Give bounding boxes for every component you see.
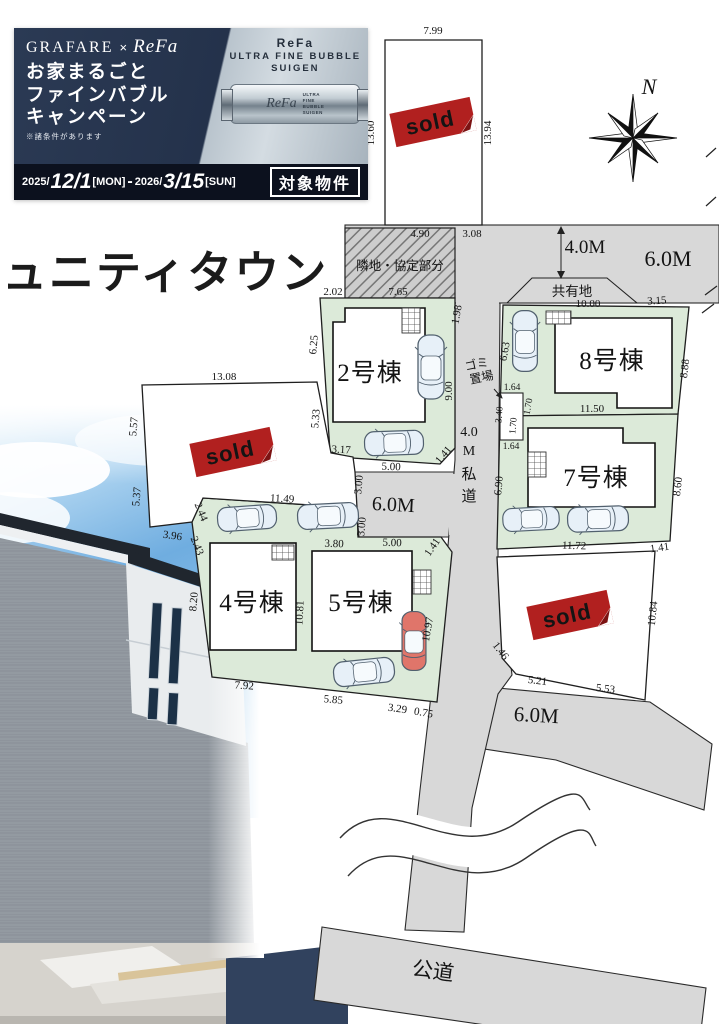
dim-label: 11.49: [270, 492, 295, 505]
lot-name: 2号棟: [337, 359, 403, 387]
dim-label: 3.00: [352, 474, 366, 495]
compass-north-icon: N: [589, 74, 677, 182]
flyer-page: ュニティタウン: [0, 0, 719, 1024]
road-label: 4.0M: [565, 237, 606, 258]
svg-text:隣地・協定部分: 隣地・協定部分: [356, 258, 444, 273]
dim-label: 1.64: [504, 383, 521, 393]
dim-label: 5.00: [382, 537, 402, 550]
dim-label: 8.20: [187, 591, 201, 612]
road-label: 6.0M: [371, 493, 415, 517]
period-separator: -: [127, 173, 132, 191]
dim-label: 3.80: [324, 538, 344, 551]
dim-label: 4.90: [410, 228, 430, 240]
dim-label: 3.40: [494, 406, 505, 424]
dim-label: 5.21: [527, 674, 548, 688]
headline-line1: お家まるごと: [26, 61, 219, 84]
device-caption: ULTRA FINE BUBBLE SUIGEN: [303, 92, 325, 115]
dim-label: 1.41: [649, 541, 670, 556]
dim-label: 5.37: [130, 486, 144, 507]
compass-label: N: [641, 74, 658, 99]
svg-text:M: M: [463, 444, 476, 459]
product-name: ReFa: [223, 36, 368, 50]
campaign-period-bar: 2025/ 12/1 [MON] - 2026/ 3/15 [SUN] 対象物件: [14, 164, 368, 200]
porch-grid-7: [528, 452, 546, 477]
lot-name: 7号棟: [563, 464, 629, 492]
svg-text:共有地: 共有地: [552, 284, 593, 299]
porch-grid-5: [413, 570, 431, 594]
road-label: 6.0M: [513, 702, 559, 728]
product-line2: ULTRA FINE BUBBLE: [223, 51, 368, 62]
shower-device-image: ReFa ULTRA FINE BUBBLE SUIGEN: [230, 84, 360, 124]
porch-grid-2: [402, 308, 420, 333]
period-day2: [SUN]: [205, 176, 236, 188]
svg-text:4.0: 4.0: [460, 425, 478, 440]
dim-label: 3.15: [647, 294, 667, 307]
campaign-banner: GRAFARE × ReFa お家まるごと ファインバブル キャンペーン ※諸条…: [14, 28, 368, 200]
car-icon: [510, 311, 540, 372]
period-date1: 12/1: [51, 170, 92, 194]
grafare-logo: GRAFARE: [26, 39, 114, 57]
dim-label: 6.90: [492, 475, 506, 496]
brand-row: GRAFARE × ReFa: [26, 36, 219, 58]
dim-label: 5.57: [127, 416, 141, 437]
porch-grid-4: [272, 545, 294, 560]
lot-name: 5号棟: [328, 589, 394, 617]
dim-label: 3.17: [331, 444, 351, 457]
dim-label: 9.00: [443, 381, 455, 401]
car-icon: [364, 427, 424, 458]
period-day1: [MON]: [92, 176, 125, 188]
dim-label: 10.81: [293, 600, 306, 625]
dim-label: 13.94: [482, 120, 494, 145]
campaign-note: ※諸条件があります: [26, 131, 219, 142]
svg-text:私: 私: [461, 466, 476, 483]
car-icon: [567, 503, 629, 536]
device-caption-line: SUIGEN: [303, 110, 325, 116]
period-date2: 3/15: [163, 170, 204, 194]
dim-label: 10.00: [576, 298, 601, 310]
banner-left: GRAFARE × ReFa お家まるごと ファインバブル キャンペーン ※諸条…: [14, 28, 223, 164]
dim-label: 3.29: [387, 702, 408, 717]
dim-label: 11.50: [580, 403, 605, 415]
dim-label: 3.00: [355, 516, 369, 537]
dim-label: 6.25: [307, 334, 321, 355]
lot-name: 4号棟: [219, 589, 285, 617]
times-icon: ×: [120, 40, 128, 55]
dim-label: 11.72: [562, 540, 587, 553]
porch-grid-8: [546, 311, 571, 324]
dim-label: 1.64: [503, 442, 520, 452]
dim-label: 3.08: [462, 228, 482, 240]
dim-label: 7.65: [388, 286, 408, 298]
refa-logo: ReFa: [133, 36, 178, 58]
road-label: 6.0M: [644, 246, 691, 271]
dim-label: 7.99: [423, 25, 443, 37]
road-public: [314, 927, 706, 1024]
dim-label: 8.88: [678, 358, 692, 379]
banner-main: GRAFARE × ReFa お家まるごと ファインバブル キャンペーン ※諸条…: [14, 28, 368, 164]
dim-label: 5.85: [323, 693, 344, 707]
road-seam: [449, 474, 461, 535]
device-logo: ReFa: [266, 96, 296, 112]
svg-text:道: 道: [461, 488, 476, 505]
dim-label: 8.60: [671, 476, 685, 497]
target-property-badge: 対象物件: [270, 167, 360, 197]
car-icon: [297, 499, 359, 533]
dim-label: 5.53: [595, 682, 616, 696]
dim-label: 2.02: [323, 286, 342, 298]
period-year2: 2026/: [135, 176, 163, 188]
dim-label: 10.84: [646, 600, 661, 626]
product-line3: SUIGEN: [223, 63, 368, 74]
dim-label: 5.33: [309, 408, 323, 429]
dim-label: 1.70: [508, 417, 519, 435]
car-icon: [502, 503, 560, 534]
headline-line2: ファインバブル: [26, 84, 219, 107]
dim-label: 0.75: [413, 705, 435, 720]
banner-right: ReFa ULTRA FINE BUBBLE SUIGEN ReFa ULTRA…: [223, 28, 368, 164]
campaign-headline: お家まるごと ファインバブル キャンペーン: [26, 61, 219, 129]
device-caption-line: BUBBLE: [303, 104, 325, 110]
dim-label: 13.08: [212, 371, 237, 383]
headline-line3: キャンペーン: [26, 106, 219, 129]
dim-label: 3.96: [162, 529, 183, 544]
dim-label: 7.92: [234, 679, 254, 692]
dim-label: 5.00: [381, 461, 401, 474]
lot-name: 8号棟: [579, 347, 645, 375]
period-year1: 2025/: [22, 176, 50, 188]
